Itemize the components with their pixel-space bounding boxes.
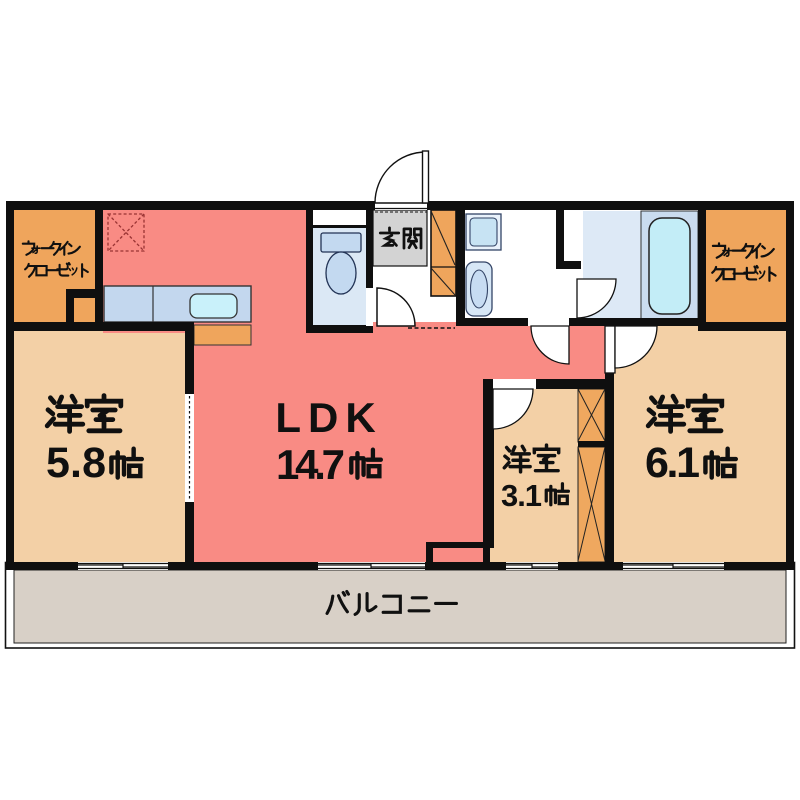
svg-text:14.7: 14.7	[276, 441, 345, 488]
svg-text:LDK: LDK	[275, 394, 382, 441]
svg-text:5.8: 5.8	[46, 439, 106, 487]
svg-text:6.1: 6.1	[645, 439, 700, 487]
svg-text:3.1: 3.1	[501, 478, 542, 513]
